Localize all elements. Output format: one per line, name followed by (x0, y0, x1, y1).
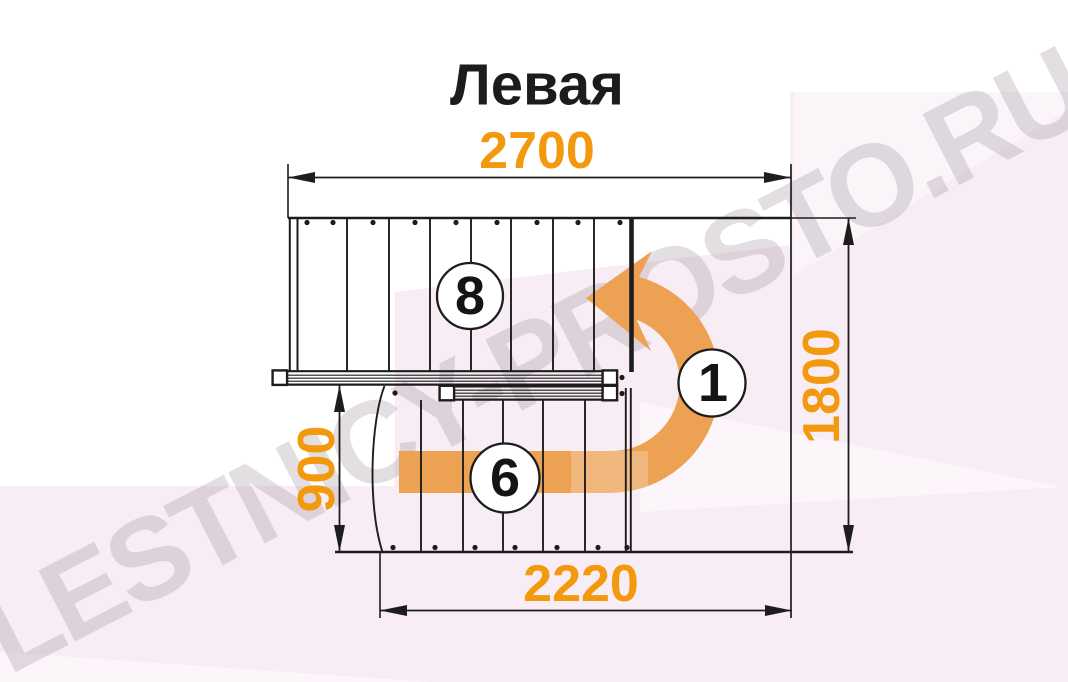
step-count-upper-flight: 8 (455, 265, 485, 327)
stair-outline (288, 164, 856, 618)
dimension-label-900: 900 (287, 426, 347, 513)
stair-plan-diagram: LESTNICY-PROSTO.RU (0, 0, 1068, 682)
lower-flight-curved-edge (373, 386, 385, 552)
arrow-highlight-patch (571, 451, 648, 493)
dimension-lines (288, 172, 854, 616)
step-count-lower-flight: 6 (490, 447, 520, 509)
support-beams (273, 370, 617, 400)
step-count-turn: 1 (698, 352, 728, 414)
dimension-label-2220: 2220 (523, 554, 639, 614)
dimension-label-1800: 1800 (792, 328, 852, 444)
dimension-label-2700: 2700 (479, 121, 595, 181)
page-title: Левая (450, 52, 624, 119)
